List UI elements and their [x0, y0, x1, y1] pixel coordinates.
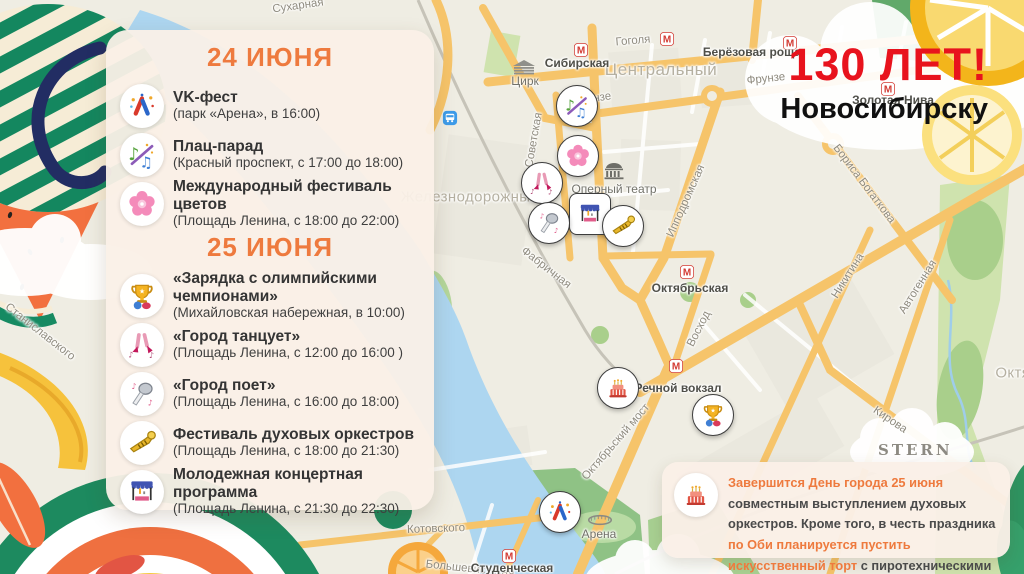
events-panel: 24 ИЮНЯVK-фест(парк «Арена», в 16:00)♪♫П…: [106, 30, 434, 510]
svg-text:♪: ♪: [131, 381, 136, 391]
undefined: ♪♫: [564, 93, 590, 119]
event-details: (Площадь Ленина, с 12:00 до 16:00 ): [173, 345, 403, 361]
event-row: Молодежная концертная программа(Площадь …: [120, 467, 420, 516]
map-marker-dance[interactable]: ♪♪: [521, 162, 563, 204]
map-marker-microphone[interactable]: ♪♪: [528, 202, 570, 244]
map-marker-fireworks[interactable]: [539, 491, 581, 533]
event-details: (Площадь Ленина, с 21:30 до 22:30): [173, 501, 420, 517]
event-title: Фестиваль духовых оркестров: [173, 426, 414, 443]
event-title: Международный фестиваль цветов: [173, 178, 420, 213]
map-marker-flower[interactable]: [557, 135, 599, 177]
stern-watermark: STERN: [878, 441, 953, 459]
event-title: «Город поет»: [173, 377, 399, 394]
cake-icon: [674, 473, 718, 517]
event-details: (парк «Арена», в 16:00): [173, 106, 320, 122]
trumpet-icon: [120, 421, 164, 465]
event-details: (Площадь Ленина, с 16:00 до 18:00): [173, 394, 399, 410]
event-row: Фестиваль духовых оркестров(Площадь Лени…: [120, 418, 420, 467]
event-row: VK-фест(парк «Арена», в 16:00): [120, 81, 420, 130]
stage-icon: [120, 470, 164, 514]
dance-icon: ♪♪: [120, 323, 164, 367]
event-row: Международный фестиваль цветов(Площадь Л…: [120, 179, 420, 228]
event-text: «Город поет»(Площадь Ленина, с 16:00 до …: [173, 377, 399, 410]
event-title: Плац-парад: [173, 138, 403, 155]
microphone-icon: ♪♪: [120, 372, 164, 416]
event-details: (Михайловская набережная, в 10:00): [173, 305, 420, 321]
svg-text:♪: ♪: [128, 145, 139, 165]
anniversary-city: Новосибирску: [780, 95, 988, 124]
map-marker-trophy[interactable]: ★: [692, 394, 734, 436]
finale-note: Завершится День города 25 июня совместны…: [662, 462, 1010, 558]
undefined: [547, 499, 573, 525]
event-text: «Зарядка с олимпийскими чемпионами»(Миха…: [173, 270, 420, 321]
city-day-poster: СухарнаяГоголяФрунзеФрунзеСоветскаяИппод…: [0, 0, 1024, 574]
svg-text:♪: ♪: [565, 96, 575, 114]
undefined: [565, 143, 591, 169]
svg-text:♪: ♪: [554, 226, 559, 235]
flower-icon: [120, 182, 164, 226]
finale-note-text: Завершится День города 25 июня совместны…: [728, 473, 998, 547]
event-text: «Город танцует»(Площадь Ленина, с 12:00 …: [173, 328, 403, 361]
map-marker-music[interactable]: ♪♫: [556, 85, 598, 127]
svg-text:♪: ♪: [148, 397, 153, 407]
section-date-1: 24 ИЮНЯ: [120, 42, 420, 73]
event-title: «Город танцует»: [173, 328, 403, 345]
event-details: (Площадь Ленина, с 18:00 до 22:00): [173, 213, 420, 229]
section-date-2: 25 ИЮНЯ: [120, 232, 420, 263]
event-details: (Площадь Ленина, с 18:00 до 21:30): [173, 443, 414, 459]
undefined: [610, 213, 636, 239]
svg-text:♫: ♫: [575, 106, 587, 119]
note-text: совместным выступлением духовых оркестро…: [728, 496, 995, 532]
svg-text:♪: ♪: [128, 349, 133, 359]
event-title: Молодежная концертная программа: [173, 466, 420, 501]
trophy-icon: ★: [120, 274, 164, 318]
undefined: [577, 201, 603, 227]
event-text: Фестиваль духовых оркестров(Площадь Лени…: [173, 426, 414, 459]
event-row: ♪♫Плац-парад(Красный проспект, с 17:00 д…: [120, 130, 420, 179]
note-highlight: Завершится День города 25 июня: [728, 475, 943, 490]
svg-text:★: ★: [139, 287, 145, 295]
undefined: ♪♪: [529, 170, 555, 196]
event-details: (Красный проспект, с 17:00 до 18:00): [173, 155, 403, 171]
event-title: «Зарядка с олимпийскими чемпионами»: [173, 270, 420, 305]
map-marker-cake[interactable]: [597, 367, 639, 409]
event-text: Молодежная концертная программа(Площадь …: [173, 466, 420, 517]
svg-text:★: ★: [710, 408, 715, 415]
event-text: Международный фестиваль цветов(Площадь Л…: [173, 178, 420, 229]
music-icon: ♪♫: [120, 133, 164, 177]
event-row: ★«Зарядка с олимпийскими чемпионами»(Мих…: [120, 271, 420, 320]
anniversary-title: 130 ЛЕТ! Новосибирску: [780, 42, 988, 124]
event-row: ♪♪«Город танцует»(Площадь Ленина, с 12:0…: [120, 320, 420, 369]
event-text: VK-фест(парк «Арена», в 16:00): [173, 89, 320, 122]
undefined: ★: [700, 402, 726, 428]
svg-text:♪: ♪: [530, 187, 535, 196]
svg-text:♪: ♪: [548, 187, 553, 196]
event-title: VK-фест: [173, 89, 320, 106]
undefined: [605, 375, 631, 401]
anniversary-years: 130 ЛЕТ!: [780, 42, 988, 87]
fireworks-icon: [120, 84, 164, 128]
svg-text:♪: ♪: [149, 350, 154, 360]
undefined: ♪♪: [536, 210, 562, 236]
svg-text:♫: ♫: [140, 153, 153, 170]
map-marker-trumpet[interactable]: [602, 205, 644, 247]
event-text: Плац-парад(Красный проспект, с 17:00 до …: [173, 138, 403, 171]
event-row: ♪♪«Город поет»(Площадь Ленина, с 16:00 д…: [120, 369, 420, 418]
svg-text:♪: ♪: [540, 212, 545, 221]
